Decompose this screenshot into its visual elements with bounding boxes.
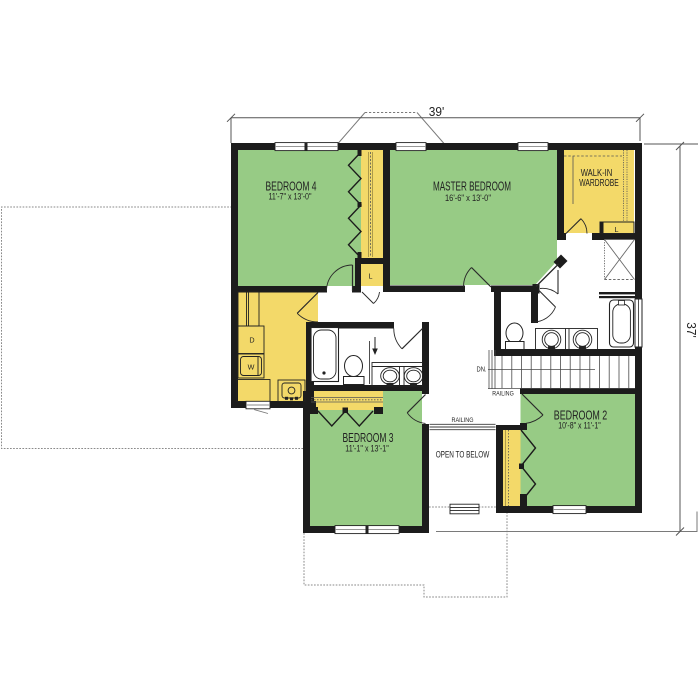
svg-text:11'-7" x 13'-0": 11'-7" x 13'-0" bbox=[269, 191, 312, 201]
svg-text:DN.: DN. bbox=[477, 366, 487, 373]
svg-text:D: D bbox=[249, 335, 254, 344]
svg-text:MASTER BEDROOM: MASTER BEDROOM bbox=[433, 178, 511, 193]
svg-text:L: L bbox=[615, 225, 619, 234]
svg-text:16'-6" x 13'-0": 16'-6" x 13'-0" bbox=[445, 193, 491, 203]
svg-text:RAILING: RAILING bbox=[492, 391, 514, 398]
svg-text:WARDROBE: WARDROBE bbox=[579, 178, 619, 189]
svg-text:W: W bbox=[248, 362, 255, 371]
svg-text:11'-1" x 13'-1": 11'-1" x 13'-1" bbox=[345, 444, 389, 454]
svg-text:39': 39' bbox=[429, 104, 445, 119]
svg-text:L: L bbox=[369, 272, 373, 281]
svg-text:10'-8" x 11'-1": 10'-8" x 11'-1" bbox=[558, 420, 601, 430]
svg-text:RAILING: RAILING bbox=[452, 417, 474, 424]
svg-text:OPEN TO BELOW: OPEN TO BELOW bbox=[436, 450, 490, 460]
svg-text:37': 37' bbox=[684, 322, 699, 338]
